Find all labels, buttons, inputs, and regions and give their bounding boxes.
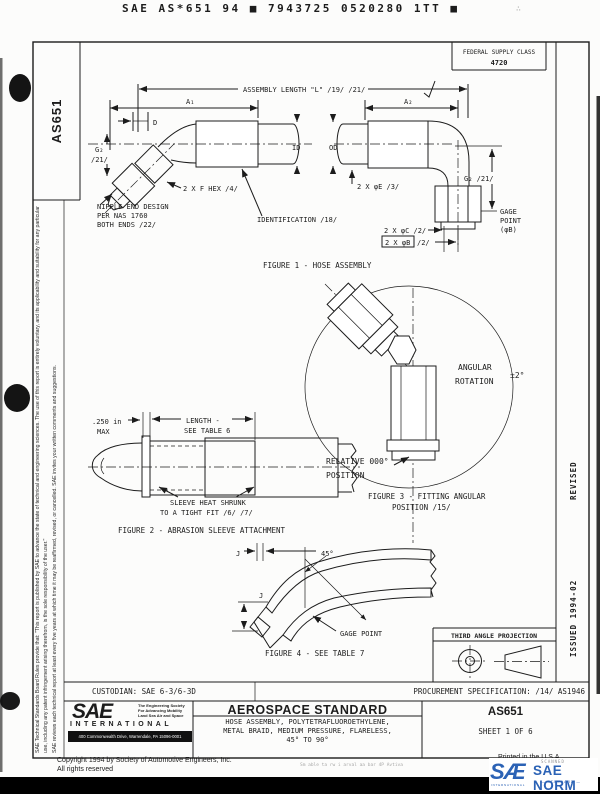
fig1-phi-c-label: 2 X φC /2/ bbox=[384, 227, 426, 235]
right-margin: REVISED ISSUED 1994-02 bbox=[569, 461, 578, 657]
sae-norm-logo: SÆ INTERNATIONAL SCANNED SAE NORM — STAN… bbox=[489, 758, 598, 791]
fig1-id-label: ID bbox=[292, 144, 300, 152]
fig2-flange bbox=[142, 436, 150, 497]
fig3-rotation-label: ROTATION bbox=[455, 377, 494, 386]
fig4-j-top-label: J bbox=[236, 550, 240, 558]
fig2-max-label: MAX bbox=[97, 428, 110, 436]
issued-label: ISSUED 1994-02 bbox=[569, 580, 578, 657]
fig2-dim250-label: .250 in bbox=[92, 418, 122, 426]
scanned-standard-page: FEDERAL SUPPLY CLASS 4720 REVISED ISSUED… bbox=[0, 0, 600, 794]
figure4-caption: FIGURE 4 - SEE TABLE 7 bbox=[265, 649, 364, 658]
fig1-identification-label: IDENTIFICATION /18/ bbox=[257, 216, 337, 224]
figure3-fitting-angular: ANGULAR ROTATION ±2° RELATIVE 000° POSIT… bbox=[305, 277, 524, 543]
fsc-value: 4720 bbox=[491, 59, 508, 67]
figure1-caption: FIGURE 1 - HOSE ASSEMBLY bbox=[263, 261, 372, 270]
fsc-title: FEDERAL SUPPLY CLASS bbox=[463, 49, 536, 56]
fig3-relative-label: RELATIVE 000° bbox=[326, 457, 389, 466]
figure3-caption-line2: POSITION /15/ bbox=[392, 503, 451, 512]
fig3-position-label: POSITION bbox=[326, 471, 365, 480]
fig1-gage-line1: GAGE bbox=[500, 208, 517, 216]
fig4-gage-point-label: GAGE POINT bbox=[340, 630, 383, 638]
fig1-d-label: D bbox=[153, 119, 157, 127]
figure4-elbow-section: J 45° J GAGE POINT FIGURE 4 - SEE TABLE … bbox=[232, 543, 436, 658]
fig2-table6-label: SEE TABLE 6 bbox=[184, 427, 230, 435]
fig3-angular-label: ANGULAR bbox=[458, 363, 492, 372]
fig1-nipple-line1: NIPPLE END DESIGN bbox=[97, 203, 169, 211]
fig1-a1-label: A₁ bbox=[186, 98, 194, 106]
fig3-lower-body bbox=[387, 366, 439, 460]
figure2-caption: FIGURE 2 - ABRASION SLEEVE ATTACHMENT bbox=[118, 526, 286, 535]
figure3-caption-line1: FIGURE 3 - FITTING ANGULAR bbox=[368, 492, 486, 501]
fig2-sleeve-note-line1: SLEEVE HEAT SHRUNK bbox=[170, 499, 247, 507]
projection-title: THIRD ANGLE PROJECTION bbox=[451, 632, 537, 640]
fig1-right-socket bbox=[368, 121, 428, 168]
federal-supply-class-box: FEDERAL SUPPLY CLASS 4720 bbox=[463, 49, 536, 67]
fig1-gage-line2: POINT bbox=[500, 217, 522, 225]
fig1-assembly-length-label: ASSEMBLY LENGTH "L" /19/ /21/ bbox=[243, 86, 365, 94]
fig1-gage-line3: (φB) bbox=[500, 226, 517, 234]
fig1-nipple-line3: BOTH ENDS /22/ bbox=[97, 221, 156, 229]
projection-cone-symbol bbox=[505, 646, 541, 678]
fig1-phi-e-label: 2 X φE /3/ bbox=[357, 183, 399, 191]
norm-name: SAE NORM bbox=[533, 763, 598, 793]
fig2-sleeve bbox=[150, 441, 255, 495]
revised-label: REVISED bbox=[569, 461, 578, 500]
third-angle-projection: THIRD ANGLE PROJECTION bbox=[451, 632, 549, 678]
fig1-g2-ref: /21/ bbox=[91, 156, 108, 164]
fig1-a2-label: A₂ bbox=[404, 98, 412, 106]
fig1-nipple-line2: PER NAS 1760 bbox=[97, 212, 148, 220]
fig3-tolerance-label: ±2° bbox=[510, 371, 524, 380]
fig1-hex-label: 2 X F HEX /4/ bbox=[183, 185, 238, 193]
fig2-sleeve-note-line2: TO A TIGHT FIT /6/ /7/ bbox=[160, 509, 253, 517]
drawing-sheet: FEDERAL SUPPLY CLASS 4720 REVISED ISSUED… bbox=[0, 0, 600, 794]
figure2-abrasion-sleeve: .250 in MAX LENGTH - SEE TABLE 6 SLEEVE … bbox=[88, 412, 360, 535]
norm-international-label: INTERNATIONAL bbox=[491, 783, 525, 787]
fig2-length-label: LENGTH - bbox=[186, 417, 220, 425]
fig4-nipple-tip bbox=[250, 617, 270, 637]
norm-sae-mark: SÆ bbox=[490, 759, 525, 785]
fig2-braid-wrap bbox=[205, 438, 338, 497]
fig1-od-label: OD bbox=[329, 144, 337, 152]
scan-artifacts bbox=[0, 58, 600, 794]
figure1-hose-assembly: ASSEMBLY LENGTH "L" /19/ /21/ A₁ A₂ D G₂… bbox=[88, 81, 522, 270]
fig1-g2-label: G₂ bbox=[95, 146, 103, 154]
fig1-g2-right-label: G₂ /21/ bbox=[464, 175, 494, 183]
fig1-phi-b-label: 2 X φB bbox=[385, 239, 410, 247]
fig1-phi-b-ref: /2/ bbox=[417, 239, 430, 247]
fig4-j-left-label: J bbox=[259, 592, 263, 600]
norm-standard-label: — STANDARD — bbox=[541, 780, 581, 784]
fig4-angle-label: 45° bbox=[321, 550, 334, 558]
